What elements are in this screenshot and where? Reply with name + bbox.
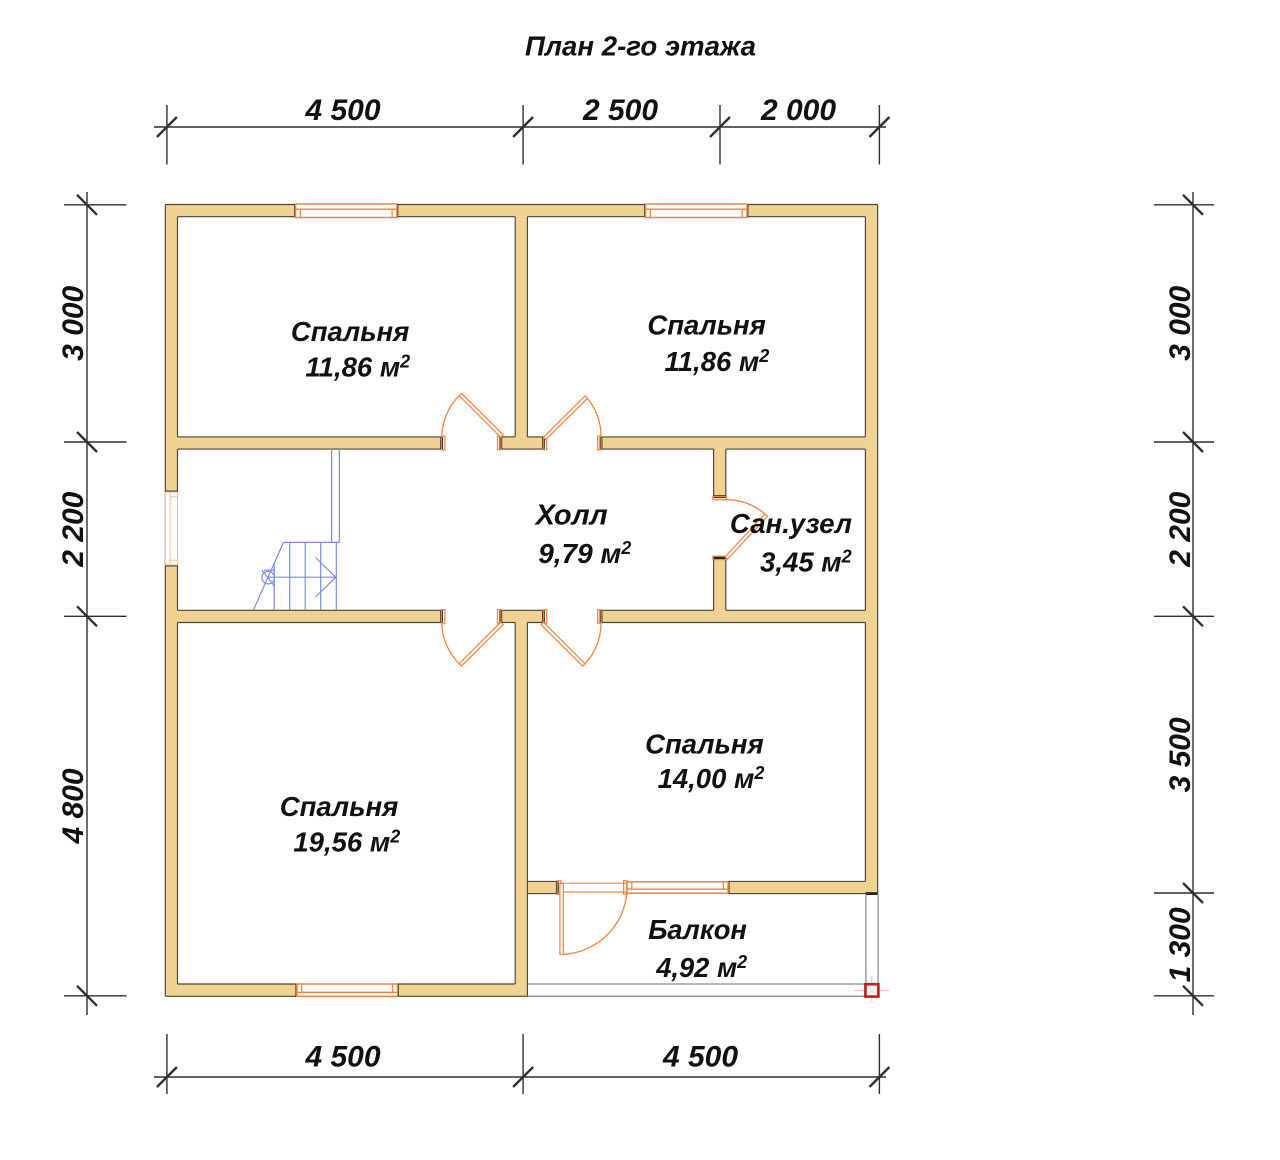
svg-text:Спальня: Спальня: [280, 791, 399, 822]
svg-text:4 800: 4 800: [57, 768, 90, 844]
svg-text:Спальня: Спальня: [647, 310, 766, 341]
svg-text:3 000: 3 000: [57, 285, 90, 360]
svg-text:3 500: 3 500: [1164, 717, 1197, 792]
svg-text:3 000: 3 000: [1164, 285, 1197, 360]
svg-text:Спальня: Спальня: [291, 316, 410, 347]
svg-text:11,86 м2: 11,86 м2: [665, 346, 770, 377]
svg-text:План 2-го этажа: План 2-го этажа: [525, 31, 756, 62]
svg-text:Холл: Холл: [534, 499, 608, 531]
svg-text:2 200: 2 200: [1164, 491, 1197, 567]
svg-text:1 300: 1 300: [1164, 907, 1197, 982]
svg-text:19,56 м2: 19,56 м2: [293, 827, 400, 858]
svg-text:Сан.узел: Сан.узел: [730, 508, 852, 539]
svg-text:4 500: 4 500: [662, 1041, 738, 1074]
svg-text:4 500: 4 500: [304, 1041, 380, 1074]
svg-text:Балкон: Балкон: [648, 914, 747, 945]
svg-text:Спальня: Спальня: [645, 729, 764, 760]
svg-text:4,92 м2: 4,92 м2: [655, 952, 747, 983]
svg-text:11,86 м2: 11,86 м2: [305, 352, 410, 383]
svg-text:9,79 м2: 9,79 м2: [538, 538, 631, 569]
svg-text:14,00 м2: 14,00 м2: [658, 763, 765, 794]
svg-text:2 200: 2 200: [57, 491, 90, 567]
svg-text:4 500: 4 500: [304, 94, 380, 127]
svg-text:3,45 м2: 3,45 м2: [760, 547, 852, 578]
svg-text:2 000: 2 000: [760, 94, 836, 127]
svg-text:2 500: 2 500: [582, 94, 658, 127]
